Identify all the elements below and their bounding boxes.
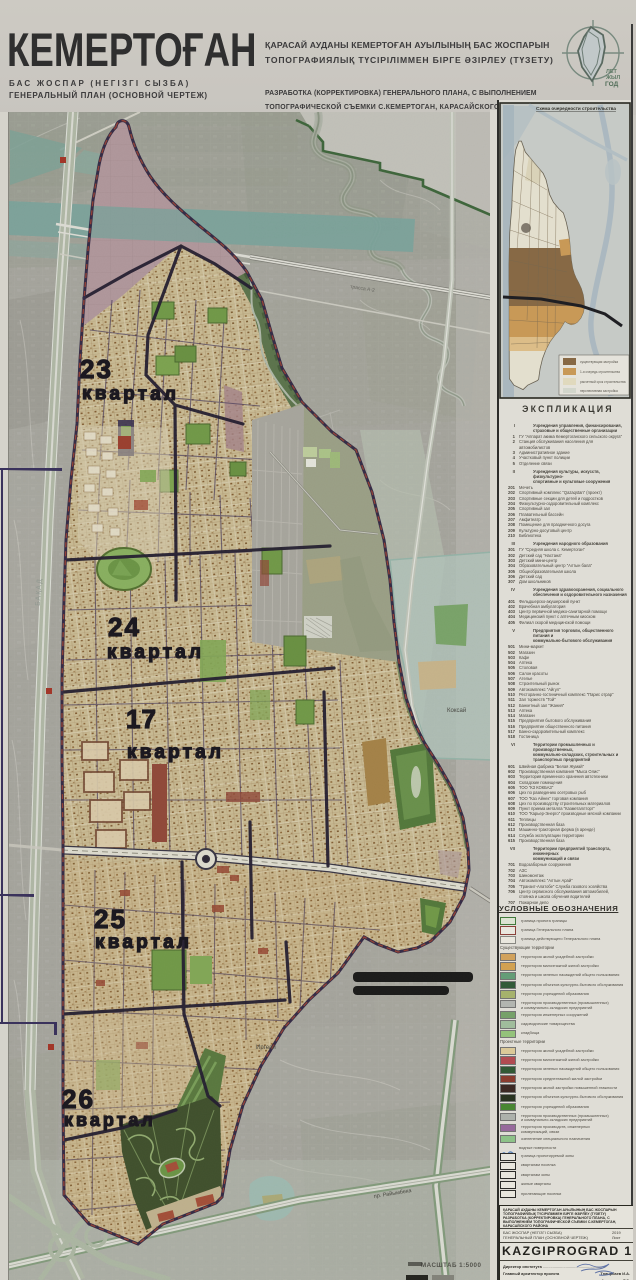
svg-text:существующая застройка: существующая застройка (580, 360, 618, 364)
svg-text:расчетный срок строительства: расчетный срок строительства (580, 380, 626, 384)
svg-text:1-я очередь строительства: 1-я очередь строительства (580, 370, 620, 374)
svg-text:перспективная застройка: перспективная застройка (580, 389, 618, 393)
svg-text:Схема очередности строительств: Схема очередности строительства (536, 106, 616, 111)
